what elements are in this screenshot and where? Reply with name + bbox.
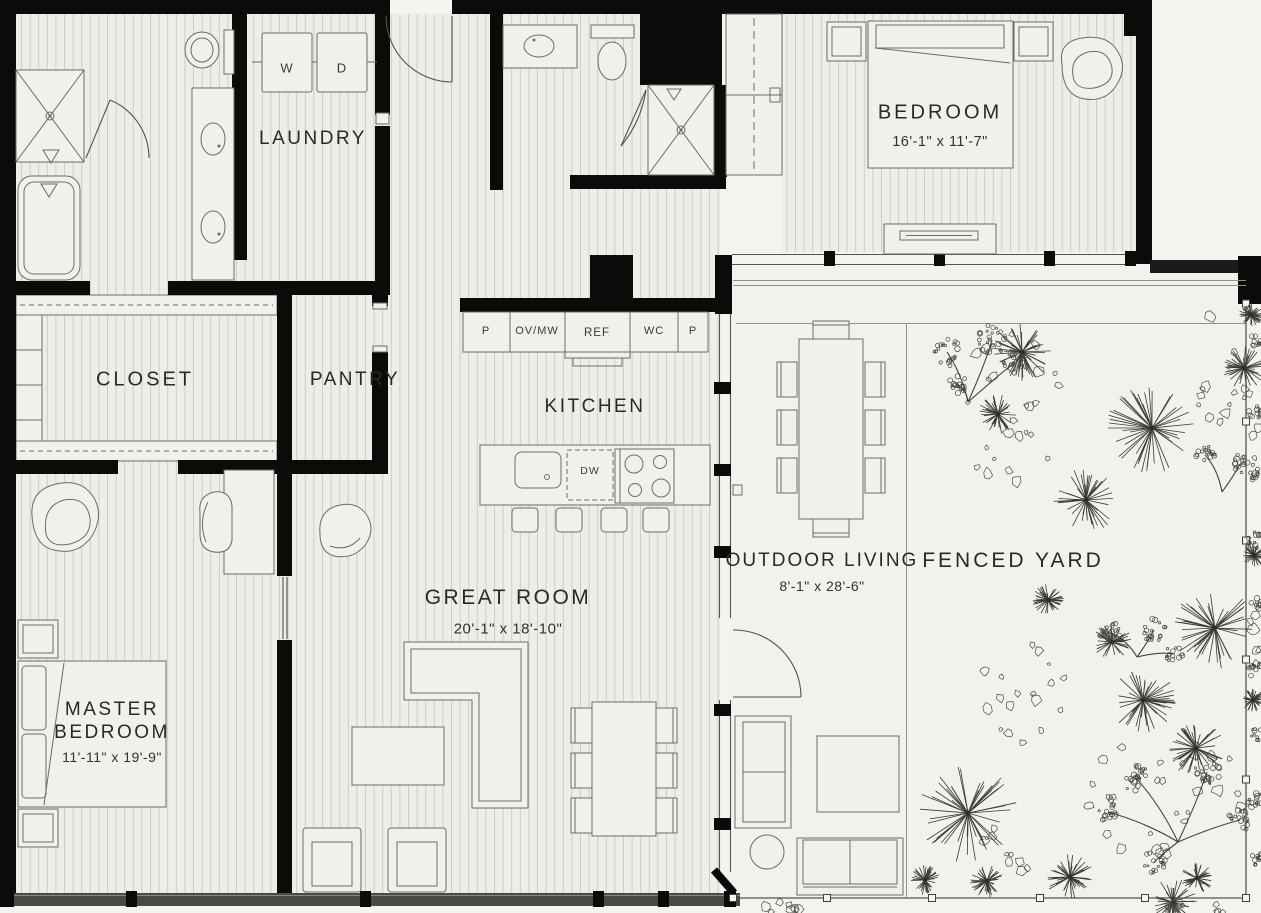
outdoor-coffee-table [817,736,899,812]
shower [16,70,84,163]
pantry-cabinet-label: P [482,325,490,337]
bathtub [18,176,80,280]
room-dims-outdoor-living: 8'-1" x 28'-6" [779,578,864,594]
dresser [884,224,996,254]
dining-table-set [571,702,677,836]
room-label-laundry: LAUNDRY [259,128,367,150]
coffee-table [352,727,444,785]
armchair [32,483,99,552]
vanity-sink [503,25,577,68]
room-dims-great-room: 20'-1" x 18'-10" [454,621,563,638]
double-vanity [192,88,234,280]
room-label-fenced-yard: FENCED YARD [922,549,1104,573]
desk-chair [200,492,232,552]
pantry-cabinet-label: P [689,325,697,337]
nightstand [18,809,58,847]
cooktop [615,449,674,503]
room-dims-master: 11'-11" x 19'-9" [62,749,162,765]
outdoor-table [799,339,863,519]
armchair [1061,37,1122,99]
room-label-master-line2: BEDROOM [54,722,170,744]
door-jamb [373,303,387,309]
nightstand [827,22,866,61]
room-label-great-room: GREAT ROOM [425,586,592,610]
room-label-master-line1: MASTER [65,699,159,721]
water-closet-label: WC [644,325,664,337]
room-dims-bedroom: 16'-1" x 11'-7" [892,134,988,150]
armchair [388,828,446,892]
room-label-pantry: PANTRY [310,369,400,391]
dishwasher-label: DW [580,465,600,477]
washer-label: W [280,61,293,76]
room-label-bedroom: BEDROOM [878,102,1002,125]
shower [648,85,714,175]
floor-plan-drawing [0,0,1261,913]
nightstand [1014,22,1053,61]
refrigerator-label: REF [584,327,610,339]
bedroom-wardrobe [726,14,782,175]
island-sink [515,452,561,488]
armchair [303,828,361,892]
room-label-closet: CLOSET [96,369,194,392]
dining-table [592,702,656,836]
oven-microwave-label: OV/MW [515,325,559,337]
room-label-outdoor-living: OUTDOOR LIVING [726,550,919,572]
round-side-table [750,835,784,869]
floor-plan: LAUNDRY BEDROOM 16'-1" x 11'-7" CLOSET P… [0,0,1261,913]
window-wall-south [0,891,740,907]
room-label-kitchen: KITCHEN [545,396,646,418]
dryer-label: D [337,61,347,76]
door-stop [733,485,742,495]
door-jamb [373,346,387,352]
door-jamb [376,113,389,124]
nightstand [18,620,58,658]
